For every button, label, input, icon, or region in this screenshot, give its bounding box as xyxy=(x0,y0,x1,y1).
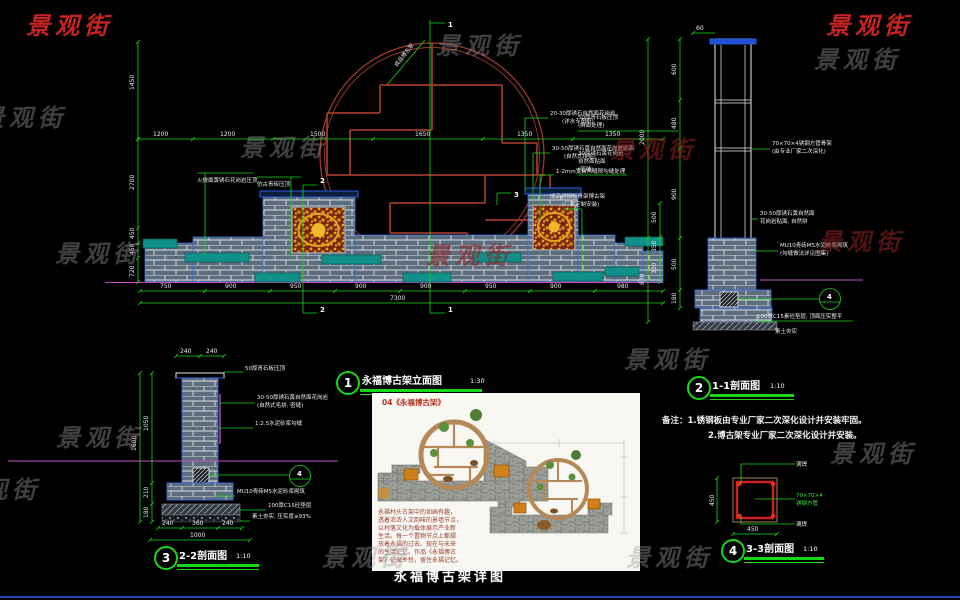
dim-text: 240 xyxy=(222,520,234,527)
view3-underline xyxy=(177,569,259,570)
annotation: MU10青砖M5水泥砂浆砌筑 xyxy=(237,487,306,495)
detail-dimensions: 450 450 xyxy=(709,476,779,536)
annotation: 花岗岩贴面, 自然拼 xyxy=(760,217,808,225)
elevation-drawing: 1 1 2 2 3 成品博古架 1200 1200 1500 1650 1350… xyxy=(5,15,665,345)
view4-underline xyxy=(744,562,824,563)
dim-text: 450 xyxy=(129,227,136,239)
dim-text: 240 xyxy=(162,520,174,527)
notes-line-1: 备注：1.锈钢板由专业厂家二次深化设计并安装牢固。 xyxy=(662,414,867,426)
steel-tube-hatch xyxy=(720,292,738,307)
dim-text: 900 xyxy=(550,283,562,290)
desc-line: 架》记录乡愁，留住永福记忆。 xyxy=(378,557,484,565)
dim-text: 720 xyxy=(129,265,136,277)
detail-number: 4 xyxy=(297,470,302,478)
desc-line: 生活。每一个置物节点上都摆 xyxy=(378,533,484,541)
annotation: MU10青砖M5水泥砂浆砌筑 xyxy=(780,241,849,249)
reference-render-panel: 04《永福博古架》 xyxy=(372,393,640,571)
annotation: 30-50厚锈石黄自然面 xyxy=(760,209,815,217)
dim-text: 750 xyxy=(160,283,172,290)
annotation: 50厚青石板压顶 xyxy=(245,364,285,372)
dim-text: 360 xyxy=(192,520,204,527)
dim-text: 950 xyxy=(485,283,497,290)
dim-text: 480 xyxy=(671,117,678,129)
view4-number-badge: 4 xyxy=(721,539,745,563)
desc-line: 透着浓浓人文韵味的景墙节点， xyxy=(378,517,484,525)
view1-underline xyxy=(360,389,482,392)
annotation: 100厚C15砼垫层 xyxy=(268,501,312,509)
view3-title: 2-2剖面图 xyxy=(179,547,227,562)
dim-text: 450 xyxy=(747,526,759,533)
dim-text: 450 xyxy=(129,243,136,255)
section1-dimensions: 60 600 480 900 500 180 2000 830 xyxy=(639,25,715,324)
annotation: 火烧面黄锈石花岗岩压顶 xyxy=(197,176,258,184)
sheet-frame-edge xyxy=(0,596,960,598)
annotation: 30厚锈石黄花岗岩 xyxy=(578,149,624,157)
view1-scale: 1:30 xyxy=(470,377,485,385)
view2-underline xyxy=(710,394,794,397)
cut-mark-3: 3 xyxy=(514,191,519,199)
annotation: 素土夯实, 压实度≥93% xyxy=(252,512,311,520)
steel-tube-hatch xyxy=(193,468,209,483)
desc-line: 永福村头古架中的如画有趣， xyxy=(378,509,484,517)
dim-text: 600 xyxy=(671,63,678,75)
dim-text: 830 xyxy=(639,273,646,285)
view3-underline xyxy=(177,564,259,567)
dim-text: 900 xyxy=(225,283,237,290)
dim-text: 500 xyxy=(671,258,678,270)
sheet-title: 永福博古架详图 xyxy=(394,566,506,585)
annotation: 50厚青石板压顶 xyxy=(578,113,618,121)
annotation: 100厚C15素砼垫层, 顶面压实整平 xyxy=(757,312,843,320)
annotation: 素土夯实 xyxy=(775,327,798,335)
concrete-layer xyxy=(162,504,240,515)
annotation: (麻面处理) xyxy=(578,121,604,129)
dim-text: 900 xyxy=(355,283,367,290)
dim-text: 2000 xyxy=(639,130,646,145)
annotation: 70×70×4 xyxy=(796,493,823,499)
dim-text: 1450 xyxy=(129,75,136,90)
dim-text: 60 xyxy=(696,25,704,32)
dim-text: 1000 xyxy=(190,532,205,539)
dim-text: 1050 xyxy=(143,416,150,431)
detail-3-3-drawing: 满焊 70×70×4 锈钢方管 满焊 450 450 xyxy=(695,452,825,547)
dim-text: 210 xyxy=(143,486,150,498)
render-description: 永福村头古架中的如画有趣， 透着浓浓人文韵味的景墙节点， 以村落文化为载体展示产… xyxy=(378,509,484,565)
view3-number-badge: 3 xyxy=(154,546,178,570)
section-2-2-drawing: 240 240 1050 210 180 1600 240 360 240 10… xyxy=(0,346,345,564)
dim-text: 900 xyxy=(420,283,432,290)
cad-sheet: 1 1 2 2 3 成品博古架 1200 1200 1500 1650 1350… xyxy=(0,0,960,600)
cut-mark-2-top: 2 xyxy=(320,177,325,185)
dim-text: 1200 xyxy=(220,131,235,138)
detail-number: 4 xyxy=(827,293,832,301)
dim-text: 950 xyxy=(290,283,302,290)
dim-text: 180 xyxy=(671,292,678,304)
cut-mark-1-top: 1 xyxy=(448,21,453,29)
view2-title: 1-1剖面图 xyxy=(712,377,760,392)
annotation: 锈钢方管 xyxy=(796,499,819,507)
gold-ornament-panel-left xyxy=(292,207,345,253)
annotation: 满焊 xyxy=(796,460,808,468)
dim-text: 2700 xyxy=(129,175,136,190)
notes-line-2: 2.博古架专业厂家二次深化设计并安装。 xyxy=(708,429,862,441)
dim-text: 1600 xyxy=(131,436,138,451)
dim-text: 180 xyxy=(143,506,150,518)
dim-text: 240 xyxy=(180,348,192,355)
annotation: (勾缝做法详见图集) xyxy=(780,249,828,257)
steel-column xyxy=(710,39,756,239)
view3-scale: 1:10 xyxy=(236,552,251,560)
dim-text: 1650 xyxy=(415,131,430,138)
view2-underline xyxy=(710,399,794,400)
annotation: 自然面贴面 xyxy=(578,157,606,165)
annotation: 70×70×4锈钢方管骨架 xyxy=(772,139,832,147)
gold-ornament-panel-right xyxy=(533,205,575,250)
dim-text: 1200 xyxy=(153,131,168,138)
dim-text: 240 xyxy=(206,348,218,355)
annotation: (由专业厂家二次深化) xyxy=(772,147,826,155)
desc-line: 以村落文化为载体展示产业新 xyxy=(378,525,484,533)
annotation: 满焊 xyxy=(796,520,808,528)
dim-text: 1500 xyxy=(310,131,325,138)
view4-underline xyxy=(744,557,824,560)
cut-mark-2-bottom: 2 xyxy=(320,306,325,314)
annotation: (自然式毛拼, 密缝) xyxy=(257,401,303,409)
watermark: 景观街 xyxy=(624,340,711,375)
view4-title: 3-3剖面图 xyxy=(746,540,794,555)
dim-text: 900 xyxy=(671,188,678,200)
view1-title: 永福博古架立面图 xyxy=(362,372,442,387)
dim-text: 7300 xyxy=(390,295,405,302)
desc-line: 的生活记忆。作品《永福博古 xyxy=(378,549,484,557)
steel-tube-detail xyxy=(733,478,777,522)
desc-line: 放着永福的过去、现在与未来 xyxy=(378,541,484,549)
render-elevation-small xyxy=(484,437,636,567)
view2-number-badge: 2 xyxy=(687,376,711,400)
annotation: 30-50厚锈石黄自然面花岗岩 xyxy=(257,393,328,401)
dim-text: 450 xyxy=(709,494,716,506)
section-1-1-drawing: 60 600 480 900 500 180 2000 830 50厚青石板压顶… xyxy=(575,25,885,345)
annotation: 仿古青砖压顶 xyxy=(257,180,291,188)
view4-scale: 1:10 xyxy=(803,545,818,553)
view1-number-badge: 1 xyxy=(336,371,360,395)
annotation: (密缝) xyxy=(578,165,593,173)
view2-scale: 1:10 xyxy=(770,382,785,390)
annotation: 1:2.5水泥砂浆勾缝 xyxy=(255,419,303,427)
cut-mark-1-bottom: 1 xyxy=(448,306,453,314)
